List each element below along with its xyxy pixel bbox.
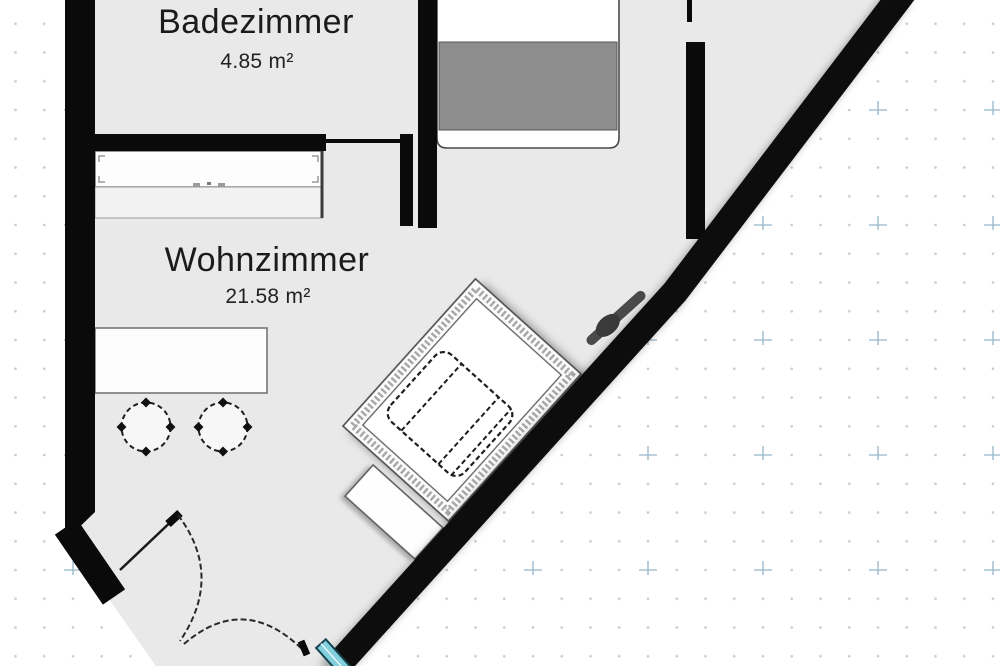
bed-blanket bbox=[439, 42, 617, 130]
room-area-badezimmer: 4.85 m² bbox=[220, 50, 293, 73]
wall-threshold-line bbox=[326, 139, 402, 143]
wall-partition bbox=[418, 0, 437, 228]
wall-right-thin bbox=[687, 0, 692, 22]
wall-left bbox=[65, 0, 95, 541]
room-label-wohnzimmer: Wohnzimmer bbox=[165, 241, 370, 279]
wall-partition-left-layer bbox=[400, 134, 413, 226]
wall-bathroom-bottom bbox=[80, 134, 326, 151]
room-area-wohnzimmer: 21.58 m² bbox=[225, 285, 310, 308]
wall-right bbox=[686, 42, 705, 239]
bed bbox=[437, 0, 619, 148]
room-label-badezimmer: Badezimmer bbox=[158, 3, 354, 41]
dining-table bbox=[95, 328, 267, 393]
floor-plan-canvas: Badezimmer 4.85 m² Wohnzimmer 21.58 m² bbox=[0, 0, 1000, 666]
wardrobe bbox=[95, 150, 322, 218]
